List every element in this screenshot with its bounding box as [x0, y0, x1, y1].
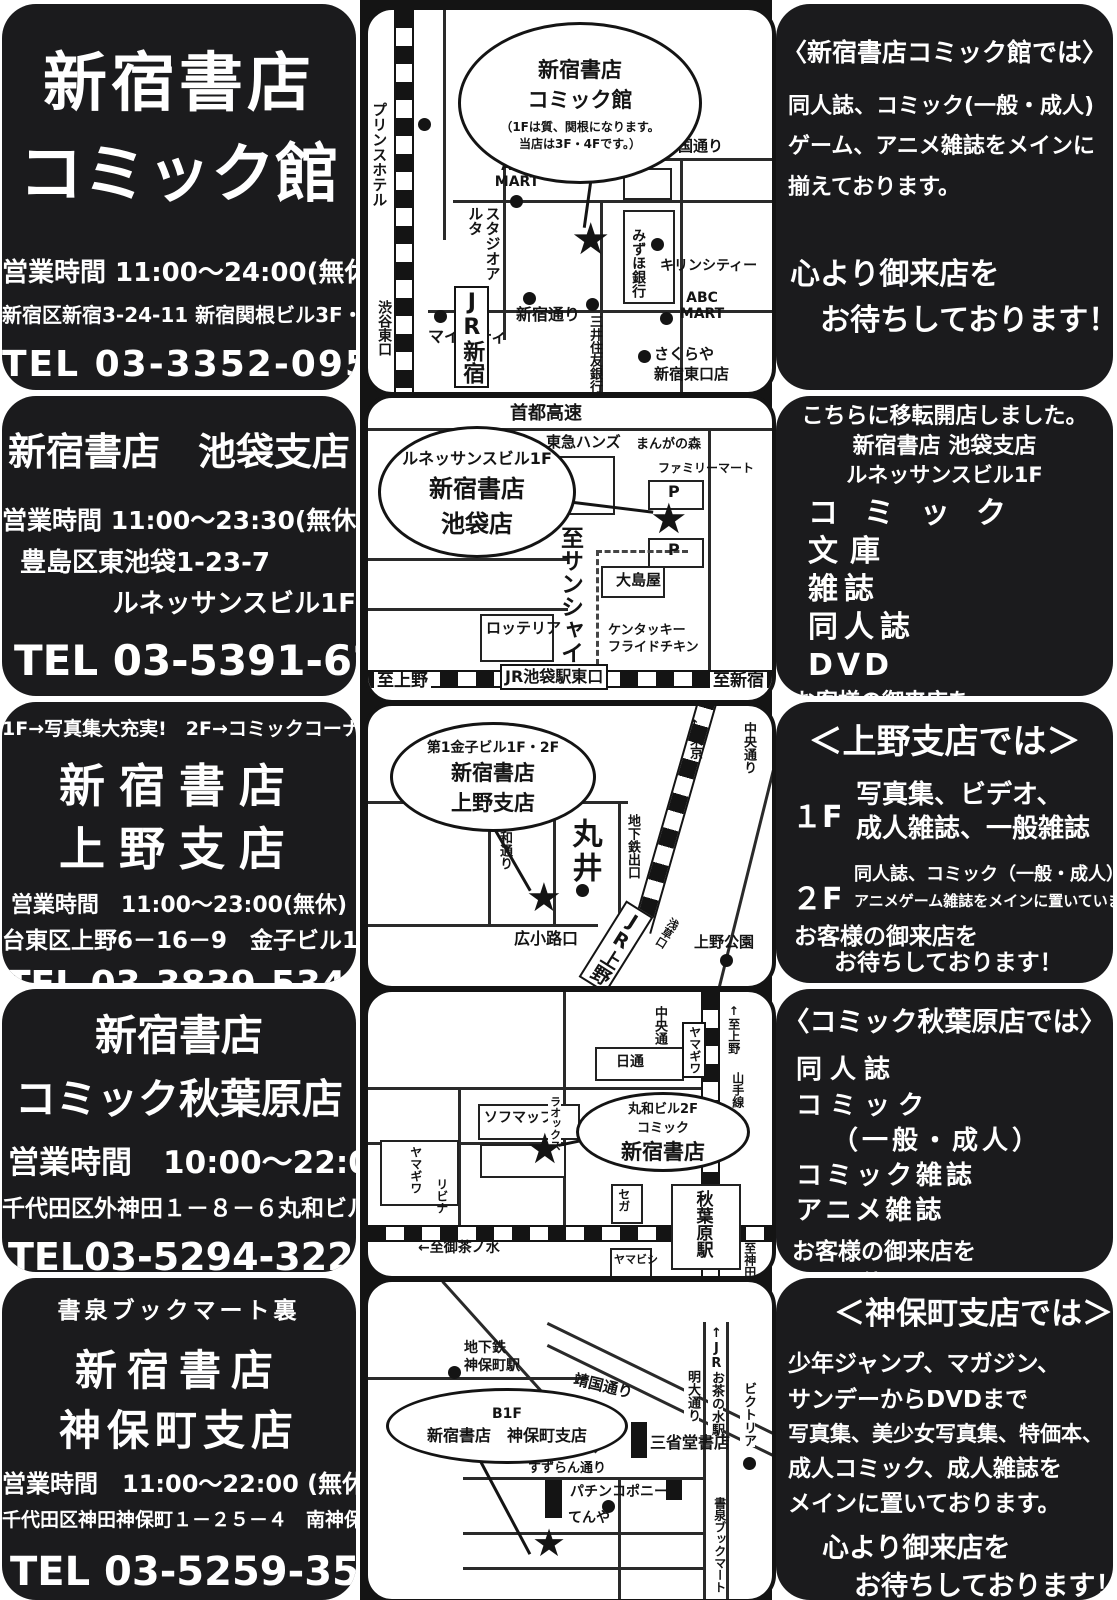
floor-label: ２F [792, 874, 843, 918]
bubble-line: 丸和ビル2F [628, 1098, 698, 1117]
map-dot [720, 954, 733, 967]
bubble-line: 新宿書店 [538, 54, 622, 84]
map-label: ABC MART [671, 290, 733, 322]
road [703, 1322, 706, 1599]
bubble-line: 上野支店 [451, 787, 535, 817]
map-label: すずらん通り [528, 1462, 606, 1477]
map-label: パチンコポニー [570, 1484, 668, 1500]
star-marker-icon: ★ [526, 1128, 564, 1170]
map-label: ↑至上野 [726, 1004, 740, 1054]
map-label: 至サンシャイン [556, 526, 582, 687]
promo-item: アニメ雑誌 [776, 1196, 1113, 1227]
store-name: 新宿書店 [2, 46, 356, 123]
bubble-line: B1F [492, 1406, 522, 1422]
info-block-comic-kan: 新宿書店 コミック館 営業時間 11:00～24:00(無休) 新宿区新宿3-2… [2, 4, 356, 390]
store-hours: 営業時間 11:00～23:00(無休) [2, 893, 356, 919]
map-dot [418, 118, 431, 131]
promo-item: コミック雑誌 [776, 1161, 1113, 1192]
map-bubble: 新宿書店 コミック館 （1Fは質、関根になります。 当店は3F・4Fです。） [458, 22, 702, 184]
map-label: 丸井 [566, 818, 601, 886]
promo-line: ゲーム、アニメ雑誌をメインに [776, 134, 1113, 160]
map-dot [510, 195, 523, 208]
map-label: フライドチキン [608, 641, 699, 656]
promo-closing: お客様の御来店を [776, 924, 1113, 952]
promo-closing: お待ちしております！ [776, 303, 1113, 339]
map-label: ↑JRお茶の水駅 [708, 1326, 723, 1436]
store-address: 千代田区外神田１－８－６丸和ビル２F [2, 1196, 356, 1224]
bubble-line: 新宿書店 [429, 469, 525, 504]
promo-heading: こちらに移転開店しました。 [776, 404, 1113, 430]
bubble-line: 新宿書店 神保町支店 [427, 1422, 587, 1446]
map-dot [651, 238, 664, 251]
store-note: 1F→写真集大充実! 2F→コミックコーナー! [2, 718, 356, 741]
promo-line: サンデーからDVDまで [776, 1387, 1113, 1415]
store-tel: TEL 03-5391-6231 [2, 636, 356, 686]
bubble-line: 当店は3F・4Fです。） [519, 135, 641, 152]
map-label: てんや [568, 1510, 610, 1526]
map-label: 新宿東口店 [654, 366, 729, 383]
map-label: 中央通 [651, 1006, 666, 1045]
promo-block-jimbocho: ＜神保町支店では＞ 少年ジャンプ、マガジン、 サンデーからDVDまで 写真集、美… [776, 1278, 1113, 1600]
flyer-page: 新宿書店 コミック館 営業時間 11:00～24:00(無休) 新宿区新宿3-2… [0, 0, 1117, 1600]
map-label: 至上野 [374, 672, 431, 692]
map-label: 浅草口 [652, 915, 680, 950]
store-tel: TEL 03-3839-5340 [2, 963, 356, 983]
map-label: JR新宿 [454, 286, 489, 388]
star-marker-icon: ★ [650, 498, 688, 540]
promo-closing: お待ちしております！ [776, 950, 1113, 978]
store-tel: TEL03-5294-3222 [2, 1235, 356, 1272]
building [666, 1480, 682, 1500]
map-jimbocho: 地下鉄 神保町駅 靖国通り 明大通り ↑JRお茶の水駅 ビクトリア B1F 新宿… [364, 1278, 776, 1600]
map-label: 秋葉原駅 [692, 1190, 712, 1258]
store-tel: TEL 03-5259-3525 [2, 1548, 356, 1596]
map-label: ←至御茶ノ水 [418, 1240, 500, 1256]
map-label: まんがの森 [636, 438, 701, 453]
store-address: 千代田区神田神保町１－２５－４ 南神保町ビルB1F [2, 1509, 356, 1532]
promo-line: 同人誌、コミック（一般・成人）、 [854, 860, 1113, 886]
bubble-line: 第1金子ビル1F・2F [427, 737, 559, 757]
promo-closing: 心より御来店を [776, 257, 1113, 293]
map-label: ビクトリア [740, 1382, 755, 1447]
map-label: 東急ハンズ [546, 434, 621, 451]
store-name: 新宿書店 [2, 1346, 356, 1396]
map-label: P [668, 541, 680, 559]
map-label: さくらや [654, 346, 714, 363]
map-label: 渋谷東口 [376, 300, 392, 356]
map-label: ヤマギワ [408, 1146, 422, 1194]
map-label: 書泉ブックマート [712, 1497, 726, 1593]
bubble-line: コミック館 [528, 84, 633, 114]
map-label: 日通 [616, 1054, 644, 1070]
map-label: JR上野 [579, 900, 654, 990]
info-block-akihabara: 新宿書店 コミック秋葉原店 営業時間 10:00～22:00 千代田区外神田１－… [2, 989, 356, 1272]
promo-line: アニメゲーム雑誌をメインに置いています。 [854, 890, 1113, 911]
map-label: ロッテリア [486, 620, 561, 637]
bubble-line: ルネッサンスビル1F [402, 445, 552, 469]
road [368, 558, 568, 561]
bubble-line: 新宿書店 [621, 1136, 705, 1166]
promo-item: 文庫 [776, 534, 1113, 570]
bubble-tail [476, 1455, 531, 1555]
store-hours: 営業時間 11:00～22:00 (無休) [2, 1470, 356, 1499]
store-hours: 営業時間 10:00～22:00 [2, 1145, 356, 1182]
promo-line: 同人誌、コミック(一般・成人) [776, 94, 1113, 120]
promo-line: ルネッサンスビル1F [776, 463, 1113, 488]
store-hours: 営業時間 11:00～24:00(無休) [2, 258, 356, 289]
route-dashed [596, 550, 599, 665]
map-label: 三井住友銀行 [586, 315, 601, 393]
map-label: 至神田↓ [742, 1242, 756, 1280]
map-label: 山手線 [730, 1072, 744, 1108]
building [545, 1480, 562, 1518]
map-label: ヤマビシ [614, 1254, 658, 1267]
store-tel: TEL 03-3352-0952 [2, 343, 356, 386]
map-label: JR池袋駅東口 [500, 664, 608, 690]
promo-heading: ＜上野支店では＞ [776, 722, 1113, 763]
star-marker-icon: ★ [526, 878, 562, 918]
map-dot [638, 350, 651, 363]
map-label: リビナ [434, 1178, 448, 1214]
store-address: 新宿区新宿3-24-11 新宿関根ビル3F・4F [2, 303, 356, 327]
road [368, 1087, 701, 1090]
store-note: 書泉ブックマート裏 [2, 1298, 356, 1326]
promo-line: メインに置いております。 [776, 1491, 1113, 1519]
store-address: 豊島区東池袋1-23-7 [2, 548, 356, 579]
promo-line: 成人雑誌、一般雑誌 [856, 808, 1090, 845]
railway [394, 10, 414, 392]
map-label: 至新宿 [710, 672, 767, 692]
promo-block-ueno: ＜上野支店では＞ １F 写真集、ビデオ、 成人雑誌、一般雑誌 ２F 同人誌、コミ… [776, 702, 1113, 983]
bubble-line: 池袋店 [441, 504, 513, 539]
map-label: 大島屋 [616, 572, 661, 589]
map-dot [523, 292, 536, 305]
map-bubble: 丸和ビル2F コミック 新宿書店 [576, 1092, 750, 1172]
bubble-line: （1Fは質、関根になります。 [500, 118, 659, 135]
promo-line: 成人コミック、成人雑誌を [776, 1456, 1113, 1484]
promo-line: 写真集、ビデオ、 [856, 774, 1062, 811]
promo-line: 少年ジャンプ、マガジン、 [776, 1351, 1113, 1379]
promo-closing: お待ちしております！ [776, 1571, 1113, 1600]
map-label: ↑東京 [686, 718, 701, 759]
store-name: 神保町支店 [2, 1406, 356, 1456]
map-bubble: 第1金子ビル1F・2F 新宿書店 上野支店 [390, 722, 596, 832]
map-label: 地下鉄 [464, 1340, 506, 1356]
star-marker-icon: ★ [571, 218, 610, 262]
map-label: 新宿通り [516, 306, 580, 324]
store-name: 上野支店 [2, 822, 356, 877]
building [631, 1422, 647, 1458]
store-address: ルネッサンスビル1F [2, 589, 356, 620]
info-block-ikebukuro: 新宿書店 池袋支店 営業時間 11:00～23:30(無休) 豊島区東池袋1-2… [2, 396, 356, 696]
store-name: 新宿書店 池袋支店 [2, 430, 356, 476]
map-label: 上野公園 [694, 934, 754, 951]
map-label: セガ [616, 1188, 630, 1212]
promo-line: 新宿書店 池袋支店 [776, 434, 1113, 460]
store-hours: 営業時間 11:00～23:30(無休) [2, 506, 356, 536]
map-label: 明大通り [684, 1370, 699, 1422]
promo-item: 雑誌 [776, 572, 1113, 608]
road [443, 10, 446, 240]
info-block-ueno: 1F→写真集大充実! 2F→コミックコーナー! 新宿書店 上野支店 営業時間 1… [2, 702, 356, 983]
map-label: 地下鉄出口 [624, 814, 639, 879]
promo-heading: 〈コミック秋葉原店では〉 [776, 1007, 1113, 1039]
road [463, 1567, 703, 1570]
map-label: ヤマギワ [682, 1022, 706, 1078]
map-label: 首都高速 [510, 404, 582, 425]
store-name: コミック館 [2, 137, 356, 214]
promo-closing: お客様の御来店を [776, 1239, 1113, 1267]
promo-line: 揃えております。 [776, 175, 1113, 201]
promo-item: DVD [776, 648, 1113, 684]
promo-heading: ＜神保町支店では＞ [776, 1296, 1113, 1333]
map-dot [434, 310, 447, 323]
map-label: 神保町駅 [464, 1358, 520, 1374]
map-label: プリンスホテル [370, 102, 387, 207]
map-label: 三省堂書店 [650, 1434, 730, 1452]
store-name: 新宿書店 [2, 759, 356, 814]
promo-item: 同人誌 [776, 610, 1113, 646]
promo-block-akihabara: 〈コミック秋葉原店では〉 同人誌 コミック （一般・成人） コミック雑誌 アニメ… [776, 989, 1113, 1272]
promo-line: 写真集、美少女写真集、特価本、 [776, 1422, 1113, 1447]
promo-closing: 心より御来店を [776, 1533, 1113, 1565]
map-dot [743, 1457, 756, 1470]
map-ueno: 第1金子ビル1F・2F 新宿書店 上野支店 ★ 昭和通り 丸井 地下鉄出口 ↑東… [364, 702, 776, 990]
promo-item: コミック [776, 496, 1113, 532]
map-bubble: ルネッサンスビル1F 新宿書店 池袋店 [378, 426, 576, 558]
road [453, 200, 772, 203]
bubble-line: 新宿書店 [451, 757, 535, 787]
store-name: 新宿書店 [2, 1011, 356, 1061]
map-bubble: B1F 新宿書店 神保町支店 [386, 1388, 628, 1464]
promo-item: コミック [776, 1091, 1113, 1122]
road [368, 924, 598, 927]
road [368, 428, 772, 431]
star-marker-icon: ★ [532, 1524, 566, 1562]
road [368, 1377, 588, 1380]
promo-closing: お客様の御来店を [776, 690, 1113, 696]
road [463, 1532, 703, 1535]
promo-closing: お待ちしております！ [776, 1271, 1113, 1272]
map-ikebukuro: 首都高速 東急ハンズ まんがの森 ファミリーマート P ★ P ルネッサンスビル… [364, 394, 776, 704]
map-label: スタジオアルタ [466, 206, 501, 282]
promo-heading: 〈新宿書店コミック館では〉 [776, 38, 1113, 68]
bubble-line: コミック [637, 1117, 689, 1136]
map-label: 中央通り [740, 722, 755, 774]
promo-block-comic-kan: 〈新宿書店コミック館では〉 同人誌、コミック(一般・成人) ゲーム、アニメ雑誌を… [776, 4, 1113, 390]
promo-item: （一般・成人） [776, 1126, 1113, 1157]
map-label: ファミリーマート [658, 462, 754, 476]
map-label: 広小路口 [514, 930, 578, 948]
map-label: ケンタッキー [608, 624, 686, 639]
road [368, 608, 568, 611]
floor-label: １F [792, 792, 843, 836]
promo-block-ikebukuro: こちらに移転開店しました。 新宿書店 池袋支店 ルネッサンスビル1F コミック … [776, 396, 1113, 696]
promo-item: 同人誌 [776, 1055, 1113, 1086]
map-label: キリンシティー [660, 258, 757, 274]
store-name: コミック秋葉原店 [2, 1075, 356, 1124]
map-shinjuku: 新宿書店 コミック館 （1Fは質、関根になります。 当店は3F・4Fです。） ★… [364, 6, 776, 396]
store-address: 台東区上野6－16－9 金子ビル1F・2F [2, 928, 356, 956]
info-block-jimbocho: 書泉ブックマート裏 新宿書店 神保町支店 営業時間 11:00～22:00 (無… [2, 1278, 356, 1600]
map-label: みずほ銀行 [630, 228, 646, 298]
map-dot [586, 298, 599, 311]
map-akihabara: 日通 中央通 ヤマギワ ↑至上野 山手線 ソフマップ ラオックス 丸和ビル2F … [364, 988, 776, 1280]
railway [632, 702, 720, 934]
map-dot [448, 1366, 461, 1379]
